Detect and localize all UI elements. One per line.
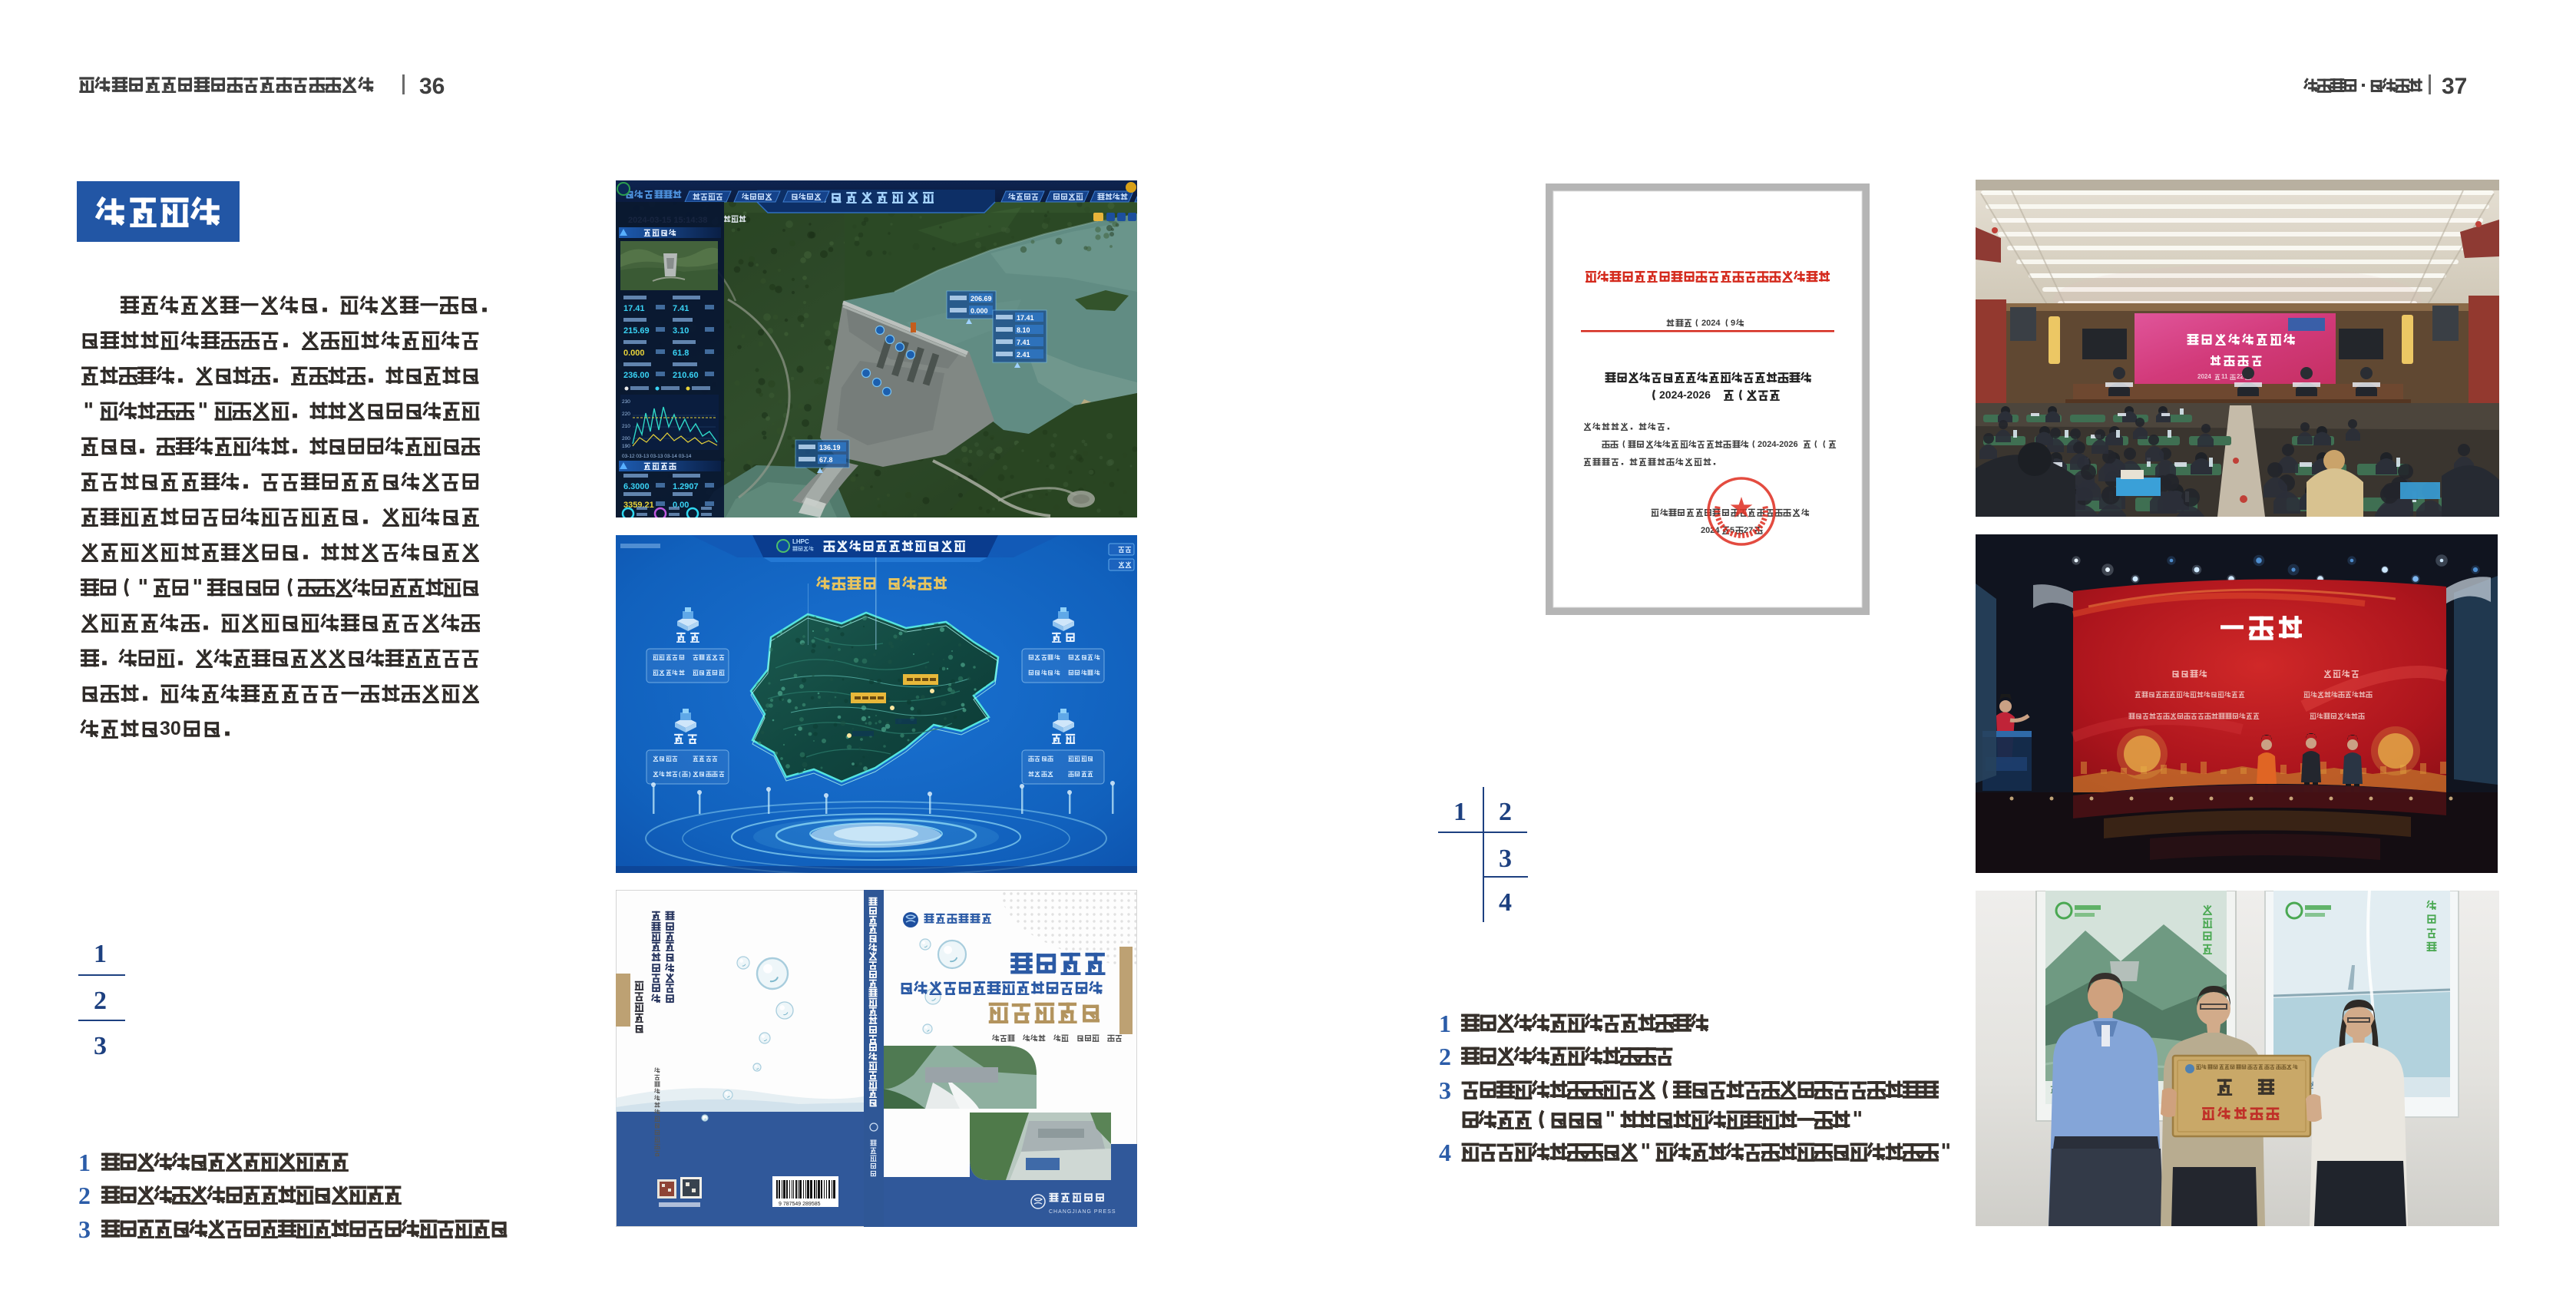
svg-text:2024: 2024 [2197,373,2211,380]
svg-text:200: 200 [622,436,630,441]
svg-text:36: 36 [419,74,445,99]
svg-text:61.8: 61.8 [673,349,689,358]
svg-text:2024-2026: 2024-2026 [1758,440,1798,449]
svg-text:17.41: 17.41 [1017,314,1034,322]
svg-text:220: 220 [622,412,630,417]
svg-text:30: 30 [160,718,181,739]
svg-text:LHPC: LHPC [792,538,809,545]
svg-text:3: 3 [94,1032,107,1060]
svg-text:3: 3 [1499,845,1512,873]
svg-text:2024: 2024 [1701,319,1721,328]
svg-text:17.41: 17.41 [623,304,645,313]
svg-text:): ) [689,771,691,778]
svg-text:9: 9 [1731,319,1735,328]
svg-text:3: 3 [1439,1076,1451,1104]
svg-text:7.41: 7.41 [673,304,689,313]
svg-text:8.10: 8.10 [1017,326,1030,334]
svg-text:7.41: 7.41 [1017,339,1030,346]
svg-text:210: 210 [622,424,630,429]
svg-text:2: 2 [94,987,107,1015]
svg-text:2: 2 [78,1182,91,1209]
svg-text:1: 1 [1453,798,1467,826]
svg-text:(: ( [679,771,681,778]
svg-text:37: 37 [2442,74,2467,99]
svg-text:3: 3 [78,1215,91,1243]
svg-text:67.8: 67.8 [819,456,833,464]
svg-text:0.000: 0.000 [971,307,988,315]
svg-text:2024-2026: 2024-2026 [1659,388,1711,401]
svg-text:6.3000: 6.3000 [623,482,650,491]
svg-text:2: 2 [1499,798,1512,826]
svg-text:210.60: 210.60 [673,371,699,380]
svg-text:4: 4 [1499,888,1512,917]
svg-text:230: 230 [622,399,630,405]
svg-text:1: 1 [78,1149,91,1176]
svg-text:3.10: 3.10 [673,326,689,336]
svg-text:9 787549 289585: 9 787549 289585 [779,1202,821,1207]
svg-text:1: 1 [94,940,107,968]
svg-text:2: 2 [1439,1043,1451,1070]
svg-text:2.41: 2.41 [1017,351,1030,359]
svg-text:0.000: 0.000 [623,349,645,358]
svg-text:4: 4 [1439,1139,1451,1166]
svg-text:236.00: 236.00 [623,371,650,380]
svg-text:CHANGJIANG PRESS: CHANGJIANG PRESS [1049,1209,1116,1215]
svg-text:215.69: 215.69 [623,326,650,336]
svg-text:206.69: 206.69 [971,295,992,303]
svg-text:190: 190 [622,444,630,449]
svg-text:136.19: 136.19 [819,444,841,451]
svg-text:1: 1 [1439,1010,1451,1037]
svg-text:1.2907: 1.2907 [673,482,699,491]
svg-text:03-12 03-13 03-13 03-14 03: 03-12 03-13 03-13 03-14 03-14 [622,454,692,459]
svg-text:11: 11 [2221,373,2228,380]
